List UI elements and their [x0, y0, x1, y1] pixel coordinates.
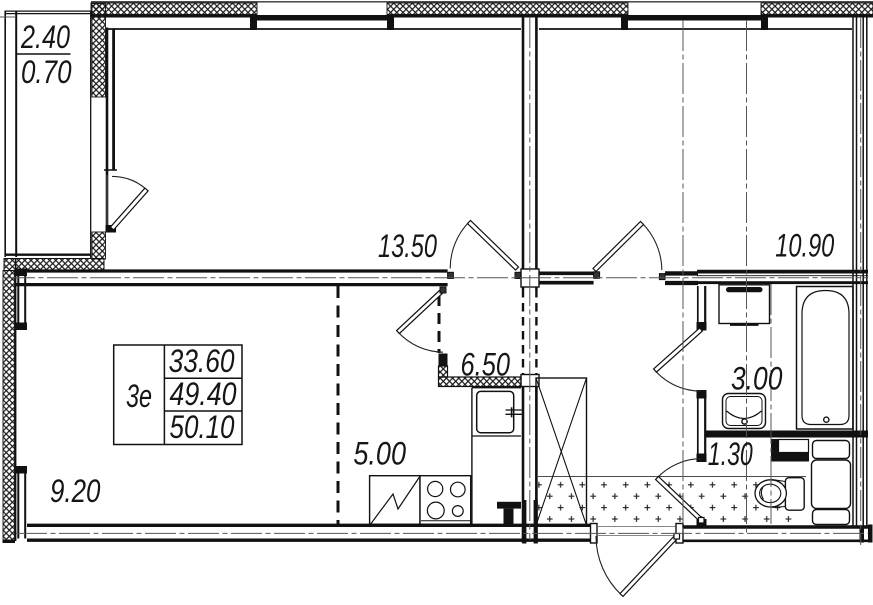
- svg-text:3е: 3е: [126, 378, 152, 414]
- svg-text:0.70: 0.70: [21, 54, 72, 90]
- svg-text:13.50: 13.50: [378, 228, 437, 264]
- svg-text:10.90: 10.90: [775, 228, 834, 264]
- svg-text:1.30: 1.30: [708, 436, 753, 472]
- svg-text:3.00: 3.00: [731, 361, 782, 397]
- svg-text:5.00: 5.00: [353, 436, 406, 472]
- svg-text:50.10: 50.10: [170, 409, 235, 445]
- svg-text:6.50: 6.50: [461, 347, 511, 383]
- svg-text:33.60: 33.60: [169, 343, 235, 379]
- svg-text:9.20: 9.20: [50, 473, 100, 509]
- svg-text:2.40: 2.40: [20, 19, 70, 55]
- svg-text:49.40: 49.40: [170, 376, 237, 412]
